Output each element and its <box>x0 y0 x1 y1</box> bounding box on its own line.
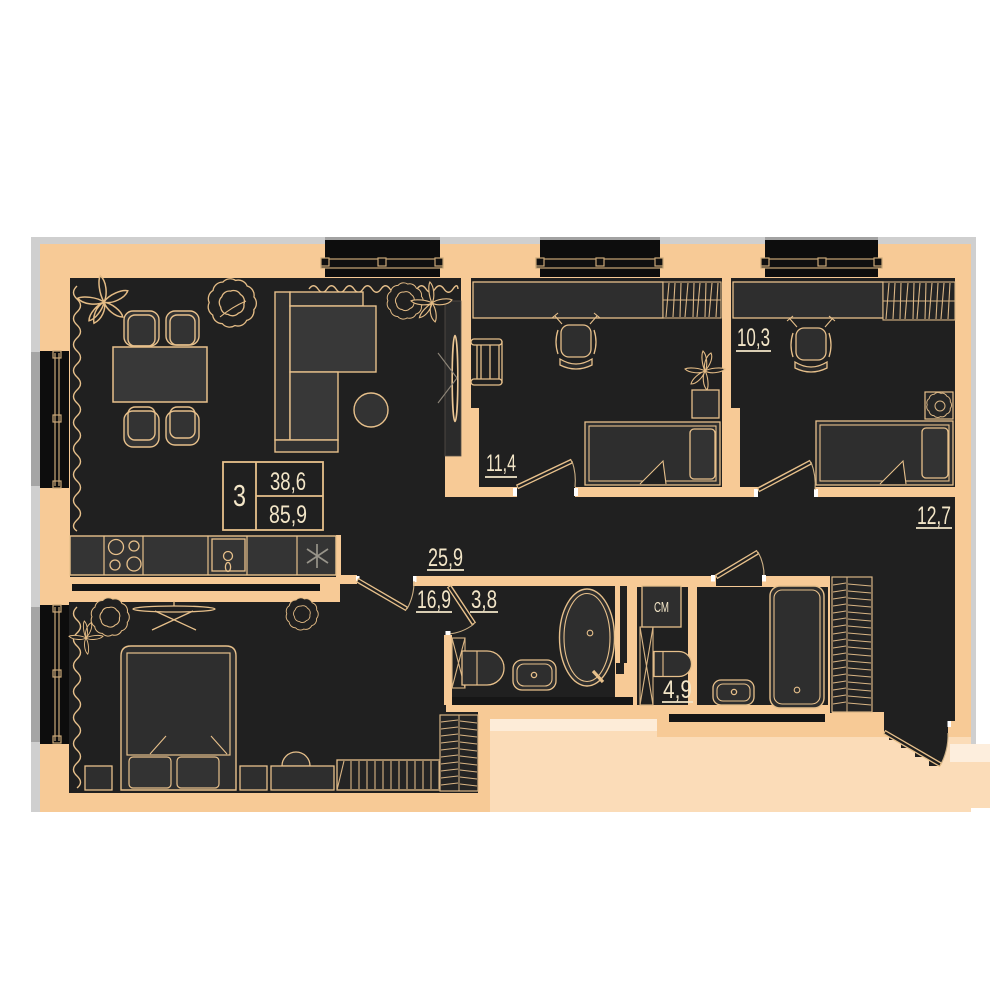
svg-text:16,9: 16,9 <box>417 586 451 614</box>
svg-text:85,9: 85,9 <box>269 501 307 529</box>
svg-text:12,7: 12,7 <box>917 502 951 530</box>
svg-text:4,9: 4,9 <box>663 676 692 704</box>
svg-text:3: 3 <box>233 478 246 513</box>
svg-text:СМ: СМ <box>654 599 669 616</box>
svg-text:3,8: 3,8 <box>471 586 497 614</box>
svg-text:25,9: 25,9 <box>428 544 463 572</box>
svg-text:11,4: 11,4 <box>486 450 516 477</box>
svg-text:10,3: 10,3 <box>737 324 770 352</box>
svg-text:38,6: 38,6 <box>270 468 306 496</box>
